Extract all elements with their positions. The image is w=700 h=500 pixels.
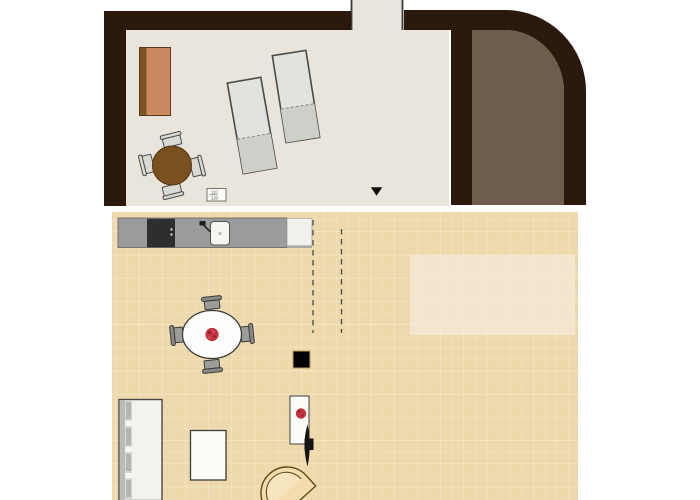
svg-text:110: 110 [211,190,218,195]
svg-text:220: 220 [211,195,219,200]
